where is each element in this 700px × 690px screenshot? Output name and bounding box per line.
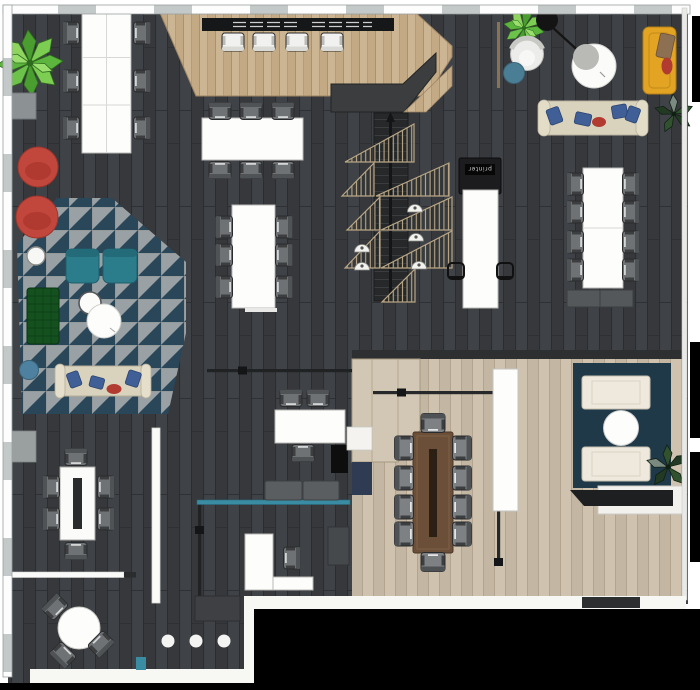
blue-pouf [20, 361, 39, 380]
whiteboard-panel [493, 369, 518, 511]
chair [567, 173, 584, 195]
bar-stools [162, 635, 231, 648]
chair [292, 445, 314, 462]
chair [276, 216, 293, 238]
chair [253, 33, 275, 51]
floor-mat [10, 93, 36, 119]
armchair-teal-2 [103, 249, 137, 283]
chair [395, 436, 414, 460]
white-partition-vertical [152, 428, 160, 603]
table-mid-vertical [232, 205, 277, 312]
chair [453, 466, 472, 490]
navy-locker [352, 462, 372, 495]
chair [272, 162, 294, 179]
chair [209, 103, 231, 120]
storage-cabinet-low [195, 596, 240, 621]
table-office-left [60, 467, 95, 540]
chair [623, 201, 640, 223]
chair [98, 476, 115, 498]
table-top-left [82, 10, 131, 153]
sofa-cream-top [538, 100, 648, 136]
chair [623, 259, 640, 281]
chair [63, 70, 80, 92]
floor-plan: printer [0, 0, 700, 690]
white-partition-horizontal [12, 572, 136, 578]
chair [63, 22, 80, 44]
printer-cabinet: printer [459, 158, 501, 194]
chair [395, 466, 414, 490]
teal-accent [136, 657, 146, 670]
chair [395, 495, 414, 519]
chair [623, 231, 640, 253]
chair [567, 231, 584, 253]
chair [421, 414, 445, 433]
window-sill-mat [9, 431, 36, 462]
chair [240, 162, 262, 179]
teal-pouf [504, 63, 525, 84]
lounge-rug-navy [573, 363, 671, 488]
wall-right [682, 8, 687, 600]
chair [216, 276, 233, 298]
chair [134, 117, 151, 139]
armchair-teal-1 [66, 249, 99, 283]
chair [43, 508, 60, 530]
chair [453, 522, 472, 546]
chair [98, 508, 115, 530]
chair [276, 244, 293, 266]
chair [65, 543, 87, 560]
chair [421, 553, 445, 572]
media-bar [202, 18, 394, 31]
floor-plan-canvas: printer [0, 0, 700, 690]
chair [453, 436, 472, 460]
chair [216, 216, 233, 238]
chair [209, 162, 231, 179]
chair [567, 259, 584, 281]
chair [453, 495, 472, 519]
sofa-yellow [643, 27, 676, 94]
conference-table [413, 432, 453, 553]
chair [65, 449, 87, 466]
lamp-pole [497, 22, 500, 88]
chair [567, 201, 584, 223]
table-mid-horizontal [202, 118, 303, 160]
chair [280, 390, 302, 407]
chair [43, 476, 60, 498]
printer-label: printer [468, 165, 492, 172]
wall-top-windows [3, 5, 690, 14]
round-coffee-table [572, 44, 616, 88]
door-mat [582, 597, 640, 608]
teal-partition [197, 500, 350, 505]
chair [395, 522, 414, 546]
chair [222, 33, 244, 51]
chair [272, 103, 294, 120]
chair [134, 22, 151, 44]
gray-bench [265, 481, 339, 500]
table-printer-station [463, 190, 498, 308]
sofa-green [27, 288, 59, 344]
chair [216, 244, 233, 266]
chair [321, 33, 343, 51]
sofa-cream-left [55, 364, 151, 398]
chair [240, 103, 262, 120]
chair [623, 173, 640, 195]
chair [134, 70, 151, 92]
wall-left-windows [3, 5, 12, 677]
storage-cabinet [328, 527, 349, 565]
chair [276, 276, 293, 298]
chair [286, 33, 308, 51]
chair [284, 547, 301, 569]
chair [63, 117, 80, 139]
chair [307, 390, 329, 407]
round-coffee-table-room [604, 411, 639, 446]
